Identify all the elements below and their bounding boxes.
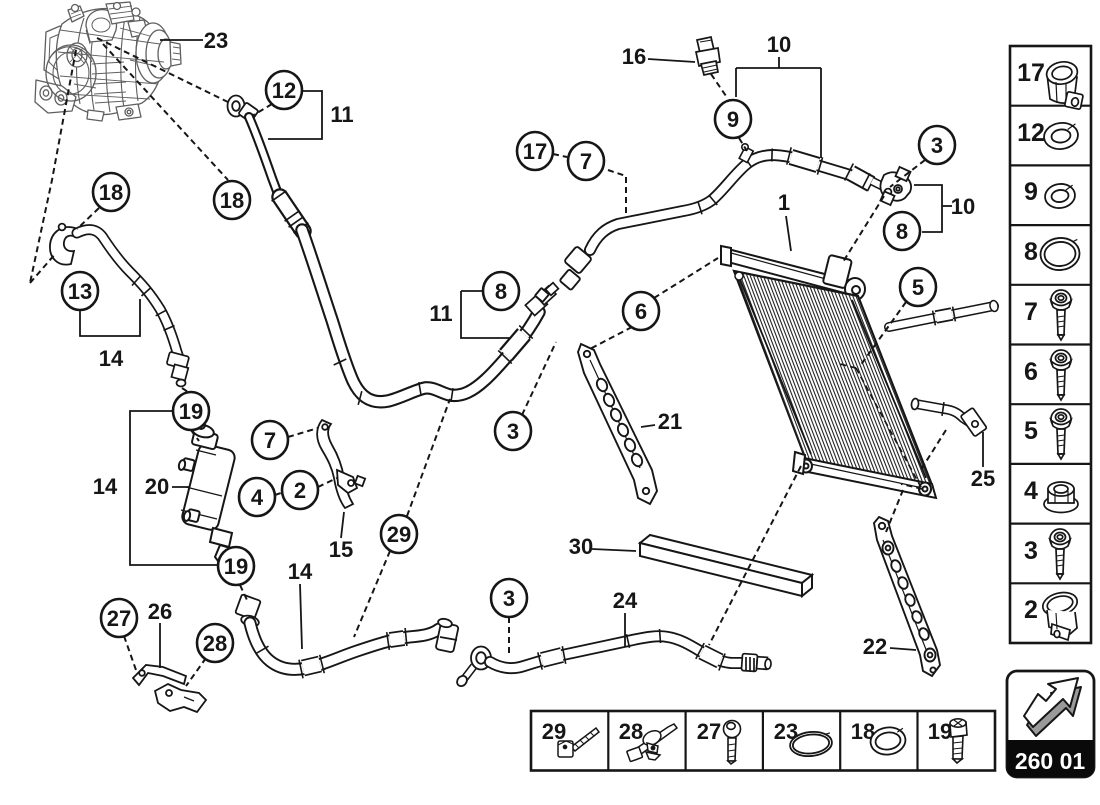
svg-text:8: 8 (495, 279, 507, 304)
svg-text:20: 20 (145, 474, 169, 499)
svg-text:5: 5 (912, 275, 924, 300)
svg-text:6: 6 (635, 299, 647, 324)
svg-text:10: 10 (951, 194, 975, 219)
svg-text:25: 25 (971, 466, 995, 491)
svg-text:14: 14 (99, 346, 124, 371)
svg-text:17: 17 (1017, 59, 1045, 87)
svg-text:12: 12 (1017, 119, 1045, 147)
svg-text:28: 28 (203, 631, 227, 656)
svg-text:2: 2 (294, 478, 306, 503)
svg-text:27: 27 (697, 719, 721, 744)
svg-text:17: 17 (523, 139, 547, 164)
svg-text:30: 30 (569, 534, 593, 559)
svg-text:28: 28 (619, 719, 643, 744)
svg-text:3: 3 (1024, 537, 1038, 565)
svg-text:3: 3 (507, 419, 519, 444)
svg-text:260 01: 260 01 (1015, 748, 1086, 774)
svg-text:4: 4 (1024, 477, 1038, 505)
svg-text:3: 3 (503, 586, 515, 611)
svg-text:5: 5 (1024, 417, 1038, 445)
svg-text:19: 19 (928, 719, 952, 744)
svg-text:26: 26 (148, 599, 172, 624)
svg-text:2: 2 (1024, 596, 1038, 624)
svg-text:18: 18 (99, 180, 123, 205)
svg-text:7: 7 (580, 149, 592, 174)
svg-text:7: 7 (264, 428, 276, 453)
svg-text:27: 27 (107, 606, 131, 631)
svg-text:9: 9 (1024, 178, 1038, 206)
svg-text:11: 11 (429, 301, 452, 326)
svg-text:1: 1 (778, 190, 790, 215)
svg-text:16: 16 (622, 44, 646, 69)
svg-text:9: 9 (727, 107, 739, 132)
svg-text:3: 3 (931, 133, 943, 158)
svg-text:14: 14 (288, 559, 313, 584)
svg-text:7: 7 (1024, 298, 1038, 326)
svg-text:14: 14 (93, 474, 118, 499)
svg-text:19: 19 (224, 554, 248, 579)
svg-text:15: 15 (329, 537, 353, 562)
svg-text:4: 4 (251, 485, 264, 510)
svg-text:6: 6 (1024, 358, 1038, 386)
svg-text:19: 19 (179, 399, 203, 424)
svg-text:10: 10 (767, 32, 791, 57)
svg-text:23: 23 (204, 28, 228, 53)
svg-text:8: 8 (896, 219, 908, 244)
svg-text:21: 21 (658, 409, 682, 434)
svg-text:29: 29 (387, 522, 411, 547)
svg-text:13: 13 (68, 279, 92, 304)
svg-text:11: 11 (330, 102, 353, 127)
svg-text:12: 12 (272, 78, 296, 103)
svg-text:22: 22 (863, 634, 887, 659)
svg-text:18: 18 (220, 188, 244, 213)
svg-text:8: 8 (1024, 238, 1038, 266)
svg-text:24: 24 (613, 588, 638, 613)
